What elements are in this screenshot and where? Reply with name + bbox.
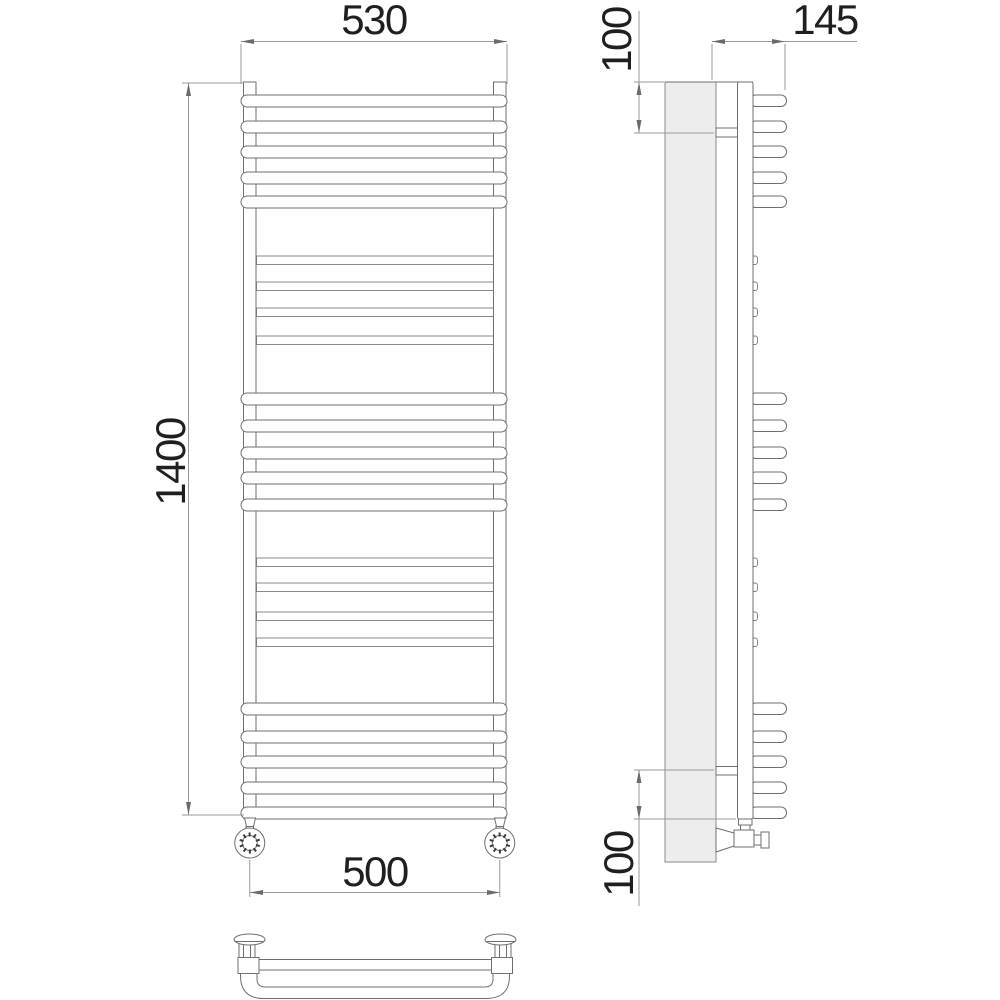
towel-bar: [241, 703, 507, 715]
dim-label-530: 530: [341, 0, 407, 43]
wide-bar-group: [241, 95, 507, 819]
wall-panel: [665, 82, 716, 862]
bar-stub: [750, 472, 787, 484]
dimension-500: 500: [250, 848, 500, 897]
bottom-view: [234, 934, 516, 999]
bar-stub-group: [750, 95, 787, 819]
valve-collar: [245, 818, 256, 827]
bracket-stem: [239, 944, 244, 959]
knurl-tick: [256, 840, 260, 841]
towel-bar-thin: [257, 282, 494, 291]
front-view: [235, 82, 515, 858]
dim-label-100-bottom: 100: [595, 831, 642, 897]
bar-stub: [750, 196, 787, 208]
towel-bar: [241, 121, 507, 133]
side-valve: [716, 819, 769, 852]
dim-label-500: 500: [342, 848, 408, 895]
side-view: [665, 82, 787, 862]
wall-flange: [485, 934, 516, 945]
towel-bar: [241, 731, 507, 743]
bracket-stem: [495, 944, 500, 959]
bracket-stem: [251, 944, 256, 959]
valve-collar: [495, 818, 506, 827]
towel-bar-thin: [257, 308, 494, 317]
bottom-bar-tube: [259, 960, 492, 971]
towel-bar-thin: [257, 256, 494, 265]
valve-collar: [739, 819, 753, 825]
side-rail: [738, 82, 754, 819]
left-valve: [235, 818, 265, 858]
dimension-530: 530: [241, 0, 507, 84]
towel-bar: [241, 756, 507, 768]
towel-bar-thin: [257, 558, 494, 567]
towel-radiator-drawing: 530 1400 500 145 100: [0, 0, 1000, 1000]
valve-body: [734, 830, 754, 847]
bar-stub: [750, 121, 787, 133]
knurl-tick: [240, 845, 244, 846]
dim-label-145: 145: [792, 0, 858, 43]
bar-stub: [750, 420, 787, 432]
bar-stub: [750, 756, 787, 768]
curved-rail-inner: [257, 971, 493, 987]
towel-bar-thin: [257, 638, 494, 647]
bracket-block: [492, 958, 513, 974]
bar-stub: [750, 146, 787, 158]
towel-bar: [241, 172, 507, 184]
bar-stub: [750, 447, 787, 459]
towel-bar: [241, 393, 507, 405]
dimension-145: 145: [712, 0, 858, 90]
towel-bar: [241, 196, 507, 208]
right-valve: [485, 818, 515, 858]
towel-bar: [241, 146, 507, 158]
towel-bar: [241, 420, 507, 432]
bar-stub: [750, 393, 787, 405]
towel-bar: [241, 472, 507, 484]
knurl-tick: [506, 840, 510, 841]
knurl-tick: [256, 845, 260, 846]
bar-stub: [750, 499, 787, 511]
towel-bar: [241, 499, 507, 511]
union-nut: [761, 832, 769, 848]
knurl-tick: [506, 845, 510, 846]
bracket-stem: [507, 944, 512, 959]
towel-bar-thin: [257, 583, 494, 592]
technical-drawing-page: 530 1400 500 145 100: [0, 0, 1000, 1000]
wall-cone: [716, 828, 734, 852]
towel-bar-thin: [257, 336, 494, 345]
dim-label-1400: 1400: [147, 418, 194, 506]
bracket-block: [238, 958, 259, 974]
bottom-wall-bracket: [716, 767, 738, 776]
bar-stub: [750, 807, 787, 819]
top-wall-bracket: [716, 128, 738, 137]
bar-stub: [750, 95, 787, 107]
towel-bar-thin: [257, 612, 494, 621]
towel-bar: [241, 447, 507, 459]
dimension-1400: 1400: [147, 83, 244, 815]
bar-stub: [750, 782, 787, 794]
knurl-tick: [490, 840, 494, 841]
bar-stub: [750, 172, 787, 184]
dim-label-100-top: 100: [593, 7, 640, 73]
wall-flange: [234, 934, 265, 945]
curved-rail-outer: [241, 971, 510, 999]
bar-stub: [750, 731, 787, 743]
towel-bar: [241, 807, 507, 819]
bar-stub: [750, 703, 787, 715]
knurl-tick: [490, 845, 494, 846]
towel-bar: [241, 95, 507, 107]
knurl-tick: [240, 840, 244, 841]
towel-bar: [241, 782, 507, 794]
valve-pipe: [754, 835, 761, 845]
